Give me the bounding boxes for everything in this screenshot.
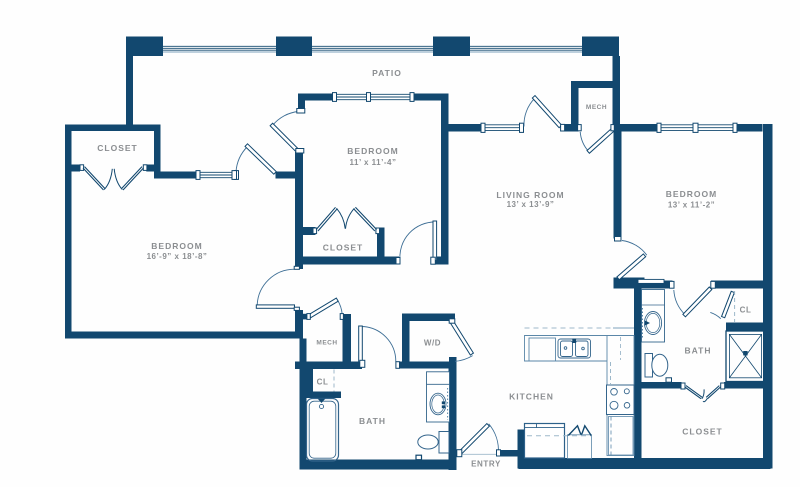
svg-text:BATH: BATH: [685, 346, 712, 356]
svg-text:BEDROOM: BEDROOM: [666, 189, 717, 199]
svg-text:CL: CL: [317, 378, 329, 387]
svg-text:W/D: W/D: [424, 339, 441, 348]
svg-text:CL: CL: [740, 306, 752, 315]
svg-text:PATIO: PATIO: [372, 68, 402, 78]
svg-text:LIVING ROOM: LIVING ROOM: [496, 190, 564, 200]
svg-text:CLOSET: CLOSET: [682, 427, 722, 437]
svg-text:MECH: MECH: [316, 340, 337, 347]
svg-text:ENTRY: ENTRY: [471, 460, 501, 469]
svg-text:BATH: BATH: [359, 416, 386, 426]
svg-text:13’ x 13’-9”: 13’ x 13’-9”: [507, 200, 555, 209]
svg-text:16’-9” x 18’-8”: 16’-9” x 18’-8”: [147, 252, 208, 261]
svg-text:11’ x 11’-4”: 11’ x 11’-4”: [350, 158, 397, 167]
svg-text:CLOSET: CLOSET: [323, 243, 363, 253]
svg-text:KITCHEN: KITCHEN: [509, 392, 554, 402]
svg-text:BEDROOM: BEDROOM: [347, 146, 398, 156]
svg-text:MECH: MECH: [586, 104, 607, 111]
svg-text:13’ x 11’-2”: 13’ x 11’-2”: [668, 201, 715, 210]
svg-text:BEDROOM: BEDROOM: [151, 241, 202, 251]
svg-text:CLOSET: CLOSET: [97, 143, 137, 153]
